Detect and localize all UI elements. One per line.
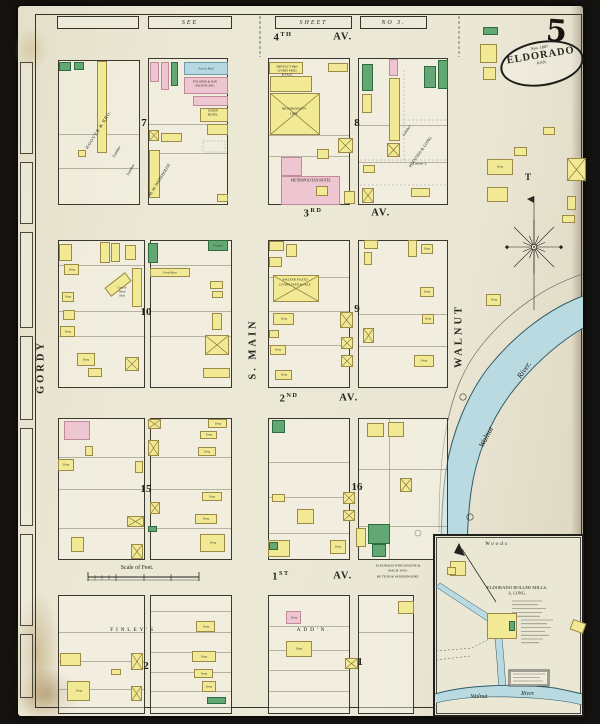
block-number-16: 16 [352,481,363,493]
map-label: PACKING HO. [196,85,215,88]
avenue-ordinal: 4 [274,32,281,43]
inset-woods-label: Woods [485,541,509,547]
block-number-1: 1 [357,656,363,668]
margin-strip-label: SEE [182,20,198,26]
avenue-label-4: 4TH [274,31,293,44]
block-number-8: 8 [354,117,360,129]
street-name-walnut: WALNUT [454,304,465,368]
margin-strip-box [57,16,139,29]
map-label: Lumber [126,164,136,177]
inset-subtitle: A. LONG. [508,592,526,596]
inset-river-river: River. [521,691,535,697]
avenue-word-4: AV. [333,32,353,43]
avenue-word-3: AV. [371,208,391,219]
margin-strip-box: SHEET [275,16,352,29]
river-label: River. [515,360,533,380]
finleys-addition-label: FINLEY'S [110,627,156,633]
avenue-ordinal: 1 [272,571,279,582]
avenue-suffix: ND [286,392,298,399]
mm-warehouse-label: M. M. WAREHOUSE [148,163,171,197]
addn-label: ADD'N. [297,627,332,633]
sanborn-map-sheet: Farris HallDwgDwgDwgDwgChapelFeed BarnDw… [0,0,600,724]
block-number-2: 2 [143,660,149,672]
map-label: MACH. WKS. [388,569,408,572]
avenue-ordinal: 2 [280,393,287,404]
map-label: BUTTON & VANDERVOORT. [377,575,419,578]
map-label: LIVERY FEED [278,70,297,73]
avenue-label-3: 3RD [304,207,323,220]
avenue-ordinal: 3 [304,208,311,219]
union-hotel-label: UNION [208,109,218,112]
block-number-15: 15 [141,483,152,495]
map-label: Coal & [118,287,127,290]
walter-floto-label: WALTER FLOTO [282,278,307,281]
map-label: & SALE [282,74,293,77]
avenue-suffix: RD [310,207,322,214]
township-marker: T [525,172,531,182]
sheet-number: 5 [545,13,568,49]
avenue-label-1: 1ST [272,570,289,583]
metropolitan-hotel-label: METROPOLITAN HOTEL [291,179,331,183]
avenue-suffix: ST [279,570,290,577]
map-label: Lumber [402,125,412,137]
pulsifer-label: PULSIFER & SON [193,81,217,84]
map-label: LIBY. [290,112,298,115]
street-name-gordy: GORDY [36,340,47,394]
map-label: Lumber S. [413,162,427,165]
wind-engine-label: ELDORADO WIND ENGINE & [376,564,420,567]
richardsons-label: RICHARDSON'S [282,107,307,110]
inset-river-walnut: Walnut [471,694,488,700]
labels-layer: HOOVER & BRO.LumberLumberM. M. WAREHOUSE… [0,0,600,724]
shivelys-label: SHIVELY'S B&S [276,66,298,69]
map-label: Lumber [112,146,122,159]
avenue-word-1: AV. [333,571,353,582]
avenue-label-2: 2ND [280,392,299,405]
margin-strip-label: SHEET [300,20,328,26]
scale-label: Scale of Feet. [121,565,154,571]
walnut-label: Walnut [477,425,495,449]
block-number-10: 10 [141,306,152,318]
map-label: Shed [119,295,125,298]
block-number-9: 9 [354,303,360,315]
margin-strip-box: SEE [148,16,232,29]
inset-title: ELDORADO ROLLER MILLS, [487,586,547,591]
margin-strip-label: NO 3. [381,20,405,26]
margin-strip-box: NO 3. [360,16,427,29]
hoover-bro-label: HOOVER & BRO. [85,110,112,150]
map-label: HOTEL [208,113,218,116]
avenue-word-2: AV. [339,393,359,404]
street-name-s-main: S. MAIN [248,318,259,379]
map-label: LIVERY FEED & SALE [279,283,310,286]
map-label: Wood [119,291,126,294]
block-number-7: 7 [141,117,147,129]
avenue-suffix: TH [280,31,292,38]
